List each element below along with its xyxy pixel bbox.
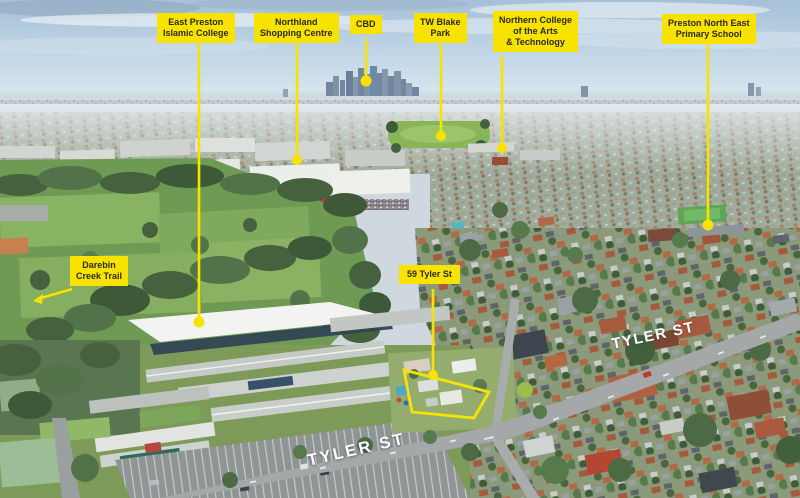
label-east-preston-islamic-college: East Preston Islamic College — [157, 13, 235, 43]
label-northern-college: Northern College of the Arts & Technolog… — [493, 11, 578, 52]
label-northland-shopping-centre: Northland Shopping Centre — [254, 13, 339, 43]
label-cbd: CBD — [350, 15, 382, 34]
label-tw-blake-park: TW Blake Park — [414, 13, 467, 43]
aerial-photo-background — [0, 0, 800, 498]
label-darebin-creek-trail: Darebin Creek Trail — [70, 256, 128, 286]
label-subject-property: 59 Tyler St — [399, 265, 460, 284]
aerial-location-photo: TYLER ST TYLER ST — [0, 0, 800, 498]
label-preston-north-east-primary: Preston North East Primary School — [662, 14, 756, 44]
